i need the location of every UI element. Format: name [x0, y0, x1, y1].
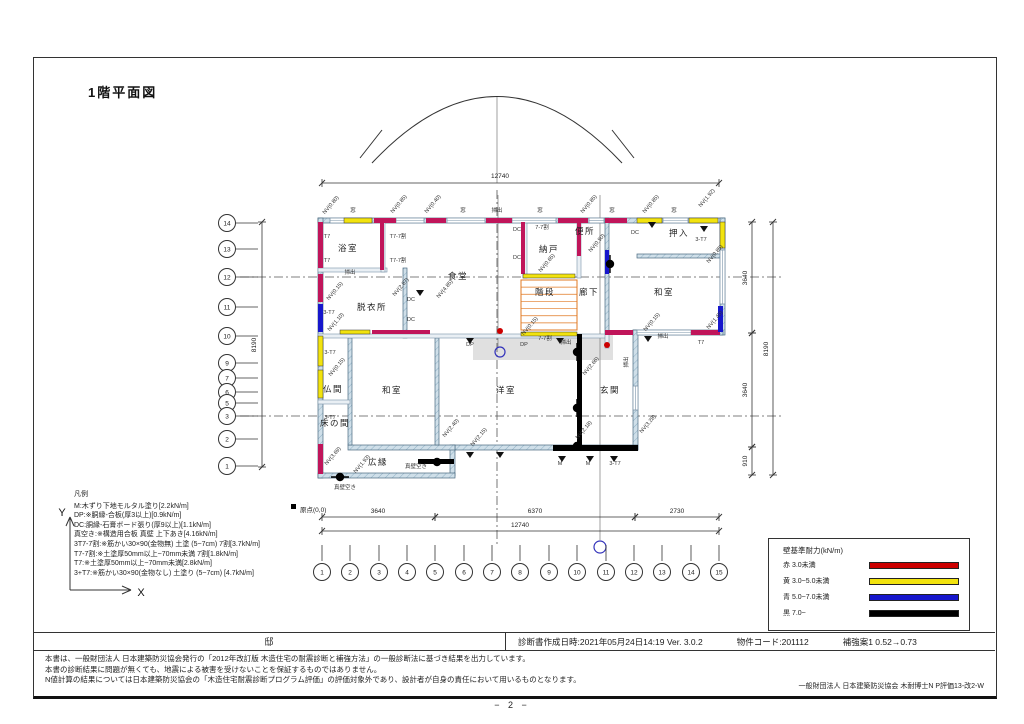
info-bar-right: 診断書作成日時:2021年05月24日14:19 Ver. 3.0.2 物件コー…: [506, 636, 995, 648]
svg-text:6: 6: [462, 569, 466, 576]
svg-text:12740: 12740: [491, 173, 509, 180]
svg-text:8190: 8190: [251, 337, 258, 352]
svg-text:7: 7: [490, 569, 494, 576]
svg-text:窓: 窓: [350, 206, 356, 214]
legend-left-item: 真空き:※構造用合板 真壁 上下あき[4.16kN/m]: [74, 530, 384, 540]
legend-row-swatch: [869, 562, 959, 569]
residence-label: 邸: [33, 633, 506, 650]
svg-text:10: 10: [573, 569, 581, 576]
svg-text:3-T7: 3-T7: [324, 350, 335, 356]
svg-text:7: 7: [225, 375, 229, 382]
svg-text:NV(1.92): NV(1.92): [698, 188, 717, 209]
svg-text:掃出: 掃出: [491, 206, 502, 214]
svg-text:便所: 便所: [575, 226, 595, 236]
svg-text:NV(0.85): NV(0.85): [580, 194, 599, 215]
svg-text:9: 9: [547, 569, 551, 576]
svg-text:14: 14: [223, 220, 231, 227]
svg-text:7-7割: 7-7割: [538, 334, 552, 342]
legend-row-label: 黄 3.0~5.0未満: [783, 576, 830, 586]
svg-text:仏間: 仏間: [323, 384, 343, 394]
legend-left-items: M:木ずり下地モルタル塗り[2.2kN/m]DP:※胴縁-合板(厚3以上)[0.…: [74, 502, 384, 579]
svg-text:洋室: 洋室: [496, 385, 516, 395]
svg-text:NV(2.15): NV(2.15): [470, 427, 489, 448]
svg-text:食堂: 食堂: [448, 271, 468, 281]
svg-text:2730: 2730: [670, 508, 685, 515]
svg-text:T7: T7: [324, 234, 330, 240]
report-page: 1階平面図 浴室脱衣所食堂納戸便所押入階段廊下和室仏間和室洋室玄関床の間広縁NV…: [0, 0, 1024, 724]
svg-text:3: 3: [225, 413, 229, 420]
svg-text:NV(3.69): NV(3.69): [324, 446, 343, 467]
svg-text:3-T7: 3-T7: [609, 461, 620, 467]
svg-text:M: M: [558, 461, 563, 467]
svg-text:910: 910: [742, 455, 749, 466]
legend-row: 赤 3.0未満: [783, 560, 959, 570]
svg-text:脱衣所: 脱衣所: [357, 302, 387, 312]
svg-text:DP: DP: [466, 342, 474, 348]
legend-row-label: 黒 7.0~: [783, 608, 806, 618]
legend-left-item: T7-7割:※土塗厚50mm以上~70mm未満 7割[1.8kN/m]: [74, 550, 384, 560]
legend-row-label: 赤 3.0未満: [783, 560, 816, 570]
svg-text:T7-7割: T7-7割: [390, 256, 407, 264]
svg-text:8: 8: [518, 569, 522, 576]
legend-left-item: DC:胴縁-石膏ボード張り(厚9以上)[1.1kN/m]: [74, 521, 384, 531]
legend-left-item: DP:※胴縁-合板(厚3以上)[0.9kN/m]: [74, 511, 384, 521]
svg-text:4: 4: [405, 569, 409, 576]
svg-text:6370: 6370: [528, 508, 543, 515]
svg-text:3-T7: 3-T7: [323, 310, 334, 316]
svg-text:掃出: 掃出: [622, 356, 630, 367]
svg-text:NV(0.85): NV(0.85): [642, 194, 661, 215]
svg-text:12: 12: [223, 274, 231, 281]
svg-text:廊下: 廊下: [579, 287, 599, 297]
svg-text:8190: 8190: [763, 341, 770, 356]
legend-left-item: 3+T7:※筋かい30×90(金物なし) 土塗り (5~7cm) [4.7kN/…: [74, 569, 384, 579]
publisher-credit: 一般財団法人 日本建築防災協会 木耐博士N P評価13-改2-W: [798, 681, 984, 691]
svg-text:5: 5: [433, 569, 437, 576]
svg-text:NV(0.15): NV(0.15): [326, 281, 345, 302]
svg-text:9: 9: [225, 360, 229, 367]
footer-notes: 本書は、一般財団法人 日本建築防災協会発行の「2012年改訂版 木造住宅の耐震診…: [45, 654, 581, 686]
svg-text:T7-7割: T7-7割: [390, 232, 407, 240]
svg-text:1: 1: [225, 463, 229, 470]
legend-row-swatch: [869, 594, 959, 601]
svg-text:Y: Y: [58, 507, 66, 519]
legend-left: 凡例 M:木ずり下地モルタル塗り[2.2kN/m]DP:※胴縁-合板(厚3以上)…: [74, 490, 384, 578]
property-code: 物件コード:201112: [737, 636, 809, 648]
svg-text:階段: 階段: [535, 287, 555, 297]
svg-text:NV(0.85): NV(0.85): [390, 194, 409, 215]
legend-row-label: 青 5.0~7.0未満: [783, 592, 830, 602]
legend-row: 黄 3.0~5.0未満: [783, 576, 959, 586]
svg-text:DC: DC: [631, 230, 639, 236]
reinforcement-plan: 補強案1 0.52→0.73: [843, 636, 917, 648]
svg-text:窓: 窓: [671, 206, 677, 214]
svg-text:和室: 和室: [654, 287, 674, 297]
legend-left-item: 3T7-7割:※筋かい30×90(金物無) 土塗 (5~7cm) 7割[3.7k…: [74, 540, 384, 550]
svg-text:浴室: 浴室: [338, 243, 358, 253]
svg-text:14: 14: [687, 569, 695, 576]
svg-text:掃出: 掃出: [344, 268, 355, 276]
svg-text:13: 13: [223, 246, 231, 253]
svg-text:M: M: [586, 461, 591, 467]
svg-text:窓: 窓: [460, 206, 466, 214]
svg-text:3640: 3640: [742, 270, 749, 285]
svg-text:窓: 窓: [609, 206, 615, 214]
svg-text:3640: 3640: [742, 382, 749, 397]
svg-text:13: 13: [658, 569, 666, 576]
legend-row-swatch: [869, 578, 959, 585]
svg-text:押入: 押入: [669, 228, 689, 238]
svg-text:掃出: 掃出: [560, 338, 571, 346]
svg-text:掃出: 掃出: [657, 332, 668, 340]
legend-row: 黒 7.0~: [783, 608, 959, 618]
svg-text:DC: DC: [513, 227, 521, 233]
svg-text:12: 12: [630, 569, 638, 576]
wall-strength-legend: 壁基準耐力(kN/m) 赤 3.0未満黄 3.0~5.0未満青 5.0~7.0未…: [768, 538, 970, 631]
svg-text:DC: DC: [407, 317, 415, 323]
footer-note-line: N値計算の結果については日本建築防災協会の「木造住宅耐震診断プログラム評価」の評…: [45, 675, 581, 686]
footer-note-line: 本書の診断結果に問題が無くても、地震による被害を受けないことを保証するものではあ…: [45, 665, 581, 676]
footer-note-line: 本書は、一般財団法人 日本建築防災協会発行の「2012年改訂版 木造住宅の耐震診…: [45, 654, 581, 665]
svg-text:7-7割: 7-7割: [535, 223, 549, 231]
svg-text:NV(4.85): NV(4.85): [436, 279, 455, 300]
svg-text:T7: T7: [324, 258, 330, 264]
svg-text:和室: 和室: [382, 385, 402, 395]
created-datetime: 診断書作成日時:2021年05月24日14:19 Ver. 3.0.2: [518, 636, 703, 648]
svg-text:NV(2.40): NV(2.40): [442, 418, 461, 439]
legend-left-item: T7:※土塗厚50mm以上~70mm未満[2.8kN/m]: [74, 559, 384, 569]
wall-strength-legend-title: 壁基準耐力(kN/m): [783, 545, 959, 556]
svg-text:NV(0.65): NV(0.65): [538, 253, 557, 274]
svg-text:2: 2: [225, 436, 229, 443]
legend-row: 青 5.0~7.0未満: [783, 592, 959, 602]
svg-text:3-T7: 3-T7: [324, 415, 335, 421]
svg-text:窓: 窓: [537, 206, 543, 214]
legend-left-title: 凡例: [74, 490, 384, 500]
svg-text:真壁空き: 真壁空き: [405, 462, 427, 470]
svg-text:NV(0.80): NV(0.80): [322, 195, 341, 216]
svg-text:DC: DC: [407, 297, 415, 303]
svg-text:10: 10: [223, 333, 231, 340]
svg-text:NV(2.87): NV(2.87): [392, 277, 411, 298]
svg-text:3-T7: 3-T7: [695, 237, 706, 243]
svg-text:5: 5: [225, 400, 229, 407]
legend-left-item: M:木ずり下地モルタル塗り[2.2kN/m]: [74, 502, 384, 512]
svg-text:11: 11: [224, 304, 231, 311]
svg-text:X: X: [137, 587, 145, 599]
svg-text:NV(3.28): NV(3.28): [639, 414, 658, 435]
legend-row-swatch: [869, 610, 959, 617]
svg-text:NV(0.15): NV(0.15): [328, 357, 347, 378]
svg-text:NV(0.15): NV(0.15): [643, 312, 662, 333]
svg-text:12740: 12740: [511, 522, 529, 529]
svg-text:NV(0.40): NV(0.40): [424, 194, 443, 215]
svg-text:納戸: 納戸: [539, 244, 559, 254]
svg-text:玄関: 玄関: [600, 385, 620, 395]
svg-text:15: 15: [715, 569, 723, 576]
info-bar: 邸 診断書作成日時:2021年05月24日14:19 Ver. 3.0.2 物件…: [33, 632, 995, 651]
page-number: − 2 −: [0, 700, 1024, 710]
wall-strength-legend-rows: 赤 3.0未満黄 3.0~5.0未満青 5.0~7.0未満黒 7.0~: [783, 560, 959, 618]
svg-text:DC: DC: [513, 255, 521, 261]
svg-text:T7: T7: [698, 340, 704, 346]
svg-text:11: 11: [603, 569, 610, 576]
svg-text:DP: DP: [520, 342, 528, 348]
